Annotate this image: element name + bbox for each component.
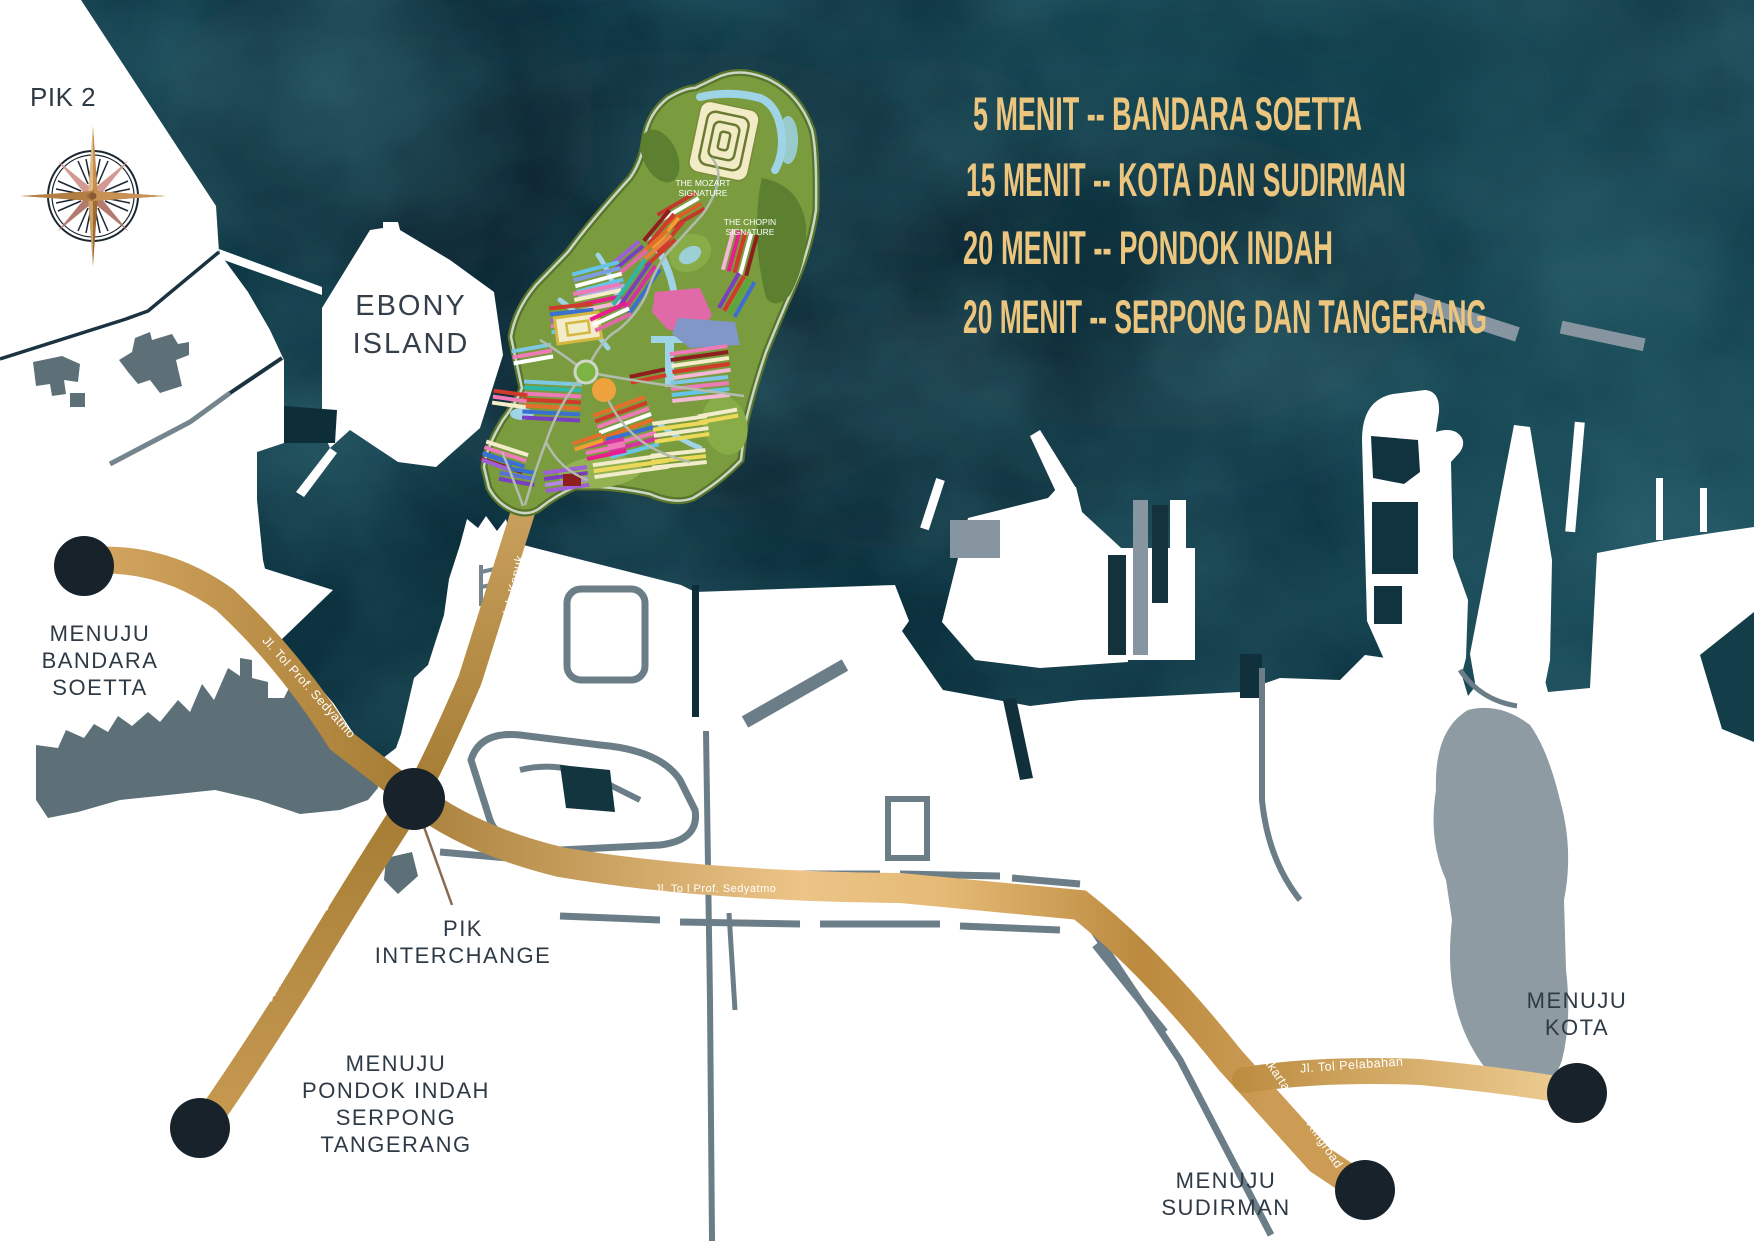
svg-text:20 MENIT -- PONDOK INDAH: 20 MENIT -- PONDOK INDAH (963, 221, 1333, 274)
svg-text:PIK 2: PIK 2 (30, 82, 96, 112)
svg-text:THE CHOPIN: THE CHOPIN (724, 217, 776, 227)
svg-text:SERPONG: SERPONG (336, 1105, 457, 1130)
svg-text:PIK: PIK (443, 916, 483, 941)
svg-text:ISLAND: ISLAND (353, 328, 470, 360)
svg-text:EBONY: EBONY (355, 290, 467, 322)
svg-text:MENUJU: MENUJU (1176, 1168, 1277, 1193)
svg-text:BANDARA: BANDARA (42, 648, 159, 673)
svg-text:PONDOK INDAH: PONDOK INDAH (302, 1078, 490, 1103)
svg-text:SIGNATURE: SIGNATURE (726, 227, 775, 237)
svg-text:15 MENIT -- KOTA DAN SUDIRMAN: 15 MENIT -- KOTA DAN SUDIRMAN (966, 153, 1406, 206)
svg-text:20 MENIT -- SERPONG DAN TANGER: 20 MENIT -- SERPONG DAN TANGERANG (963, 290, 1487, 343)
svg-text:KOTA: KOTA (1545, 1015, 1609, 1040)
svg-text:MENUJU: MENUJU (1527, 988, 1628, 1013)
svg-text:THE MOZART: THE MOZART (675, 178, 730, 188)
svg-text:TANGERANG: TANGERANG (320, 1132, 471, 1157)
svg-text:SIGNATURE: SIGNATURE (679, 188, 728, 198)
svg-text:SUDIRMAN: SUDIRMAN (1161, 1195, 1290, 1220)
svg-text:INTERCHANGE: INTERCHANGE (375, 943, 552, 968)
svg-text:SOETTA: SOETTA (52, 675, 147, 700)
svg-text:MENUJU: MENUJU (50, 621, 151, 646)
svg-text:5 MENIT -- BANDARA SOETTA: 5 MENIT -- BANDARA SOETTA (973, 87, 1362, 140)
svg-text:MENUJU: MENUJU (346, 1051, 447, 1076)
svg-text:Jl. To l Prof. Sedyatmo: Jl. To l Prof. Sedyatmo (655, 883, 776, 895)
